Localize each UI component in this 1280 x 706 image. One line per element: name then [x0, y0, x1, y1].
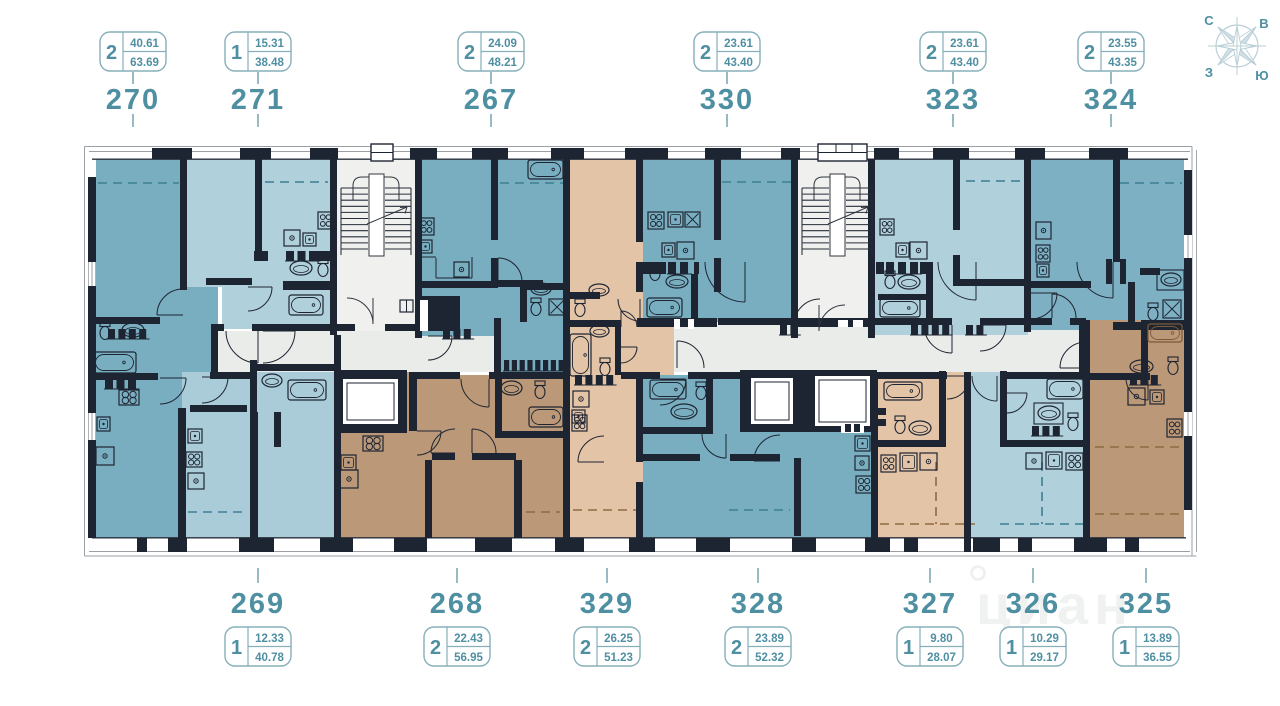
svg-text:1: 1	[903, 637, 914, 659]
svg-text:52.32: 52.32	[755, 652, 784, 664]
svg-text:10.29: 10.29	[1030, 633, 1059, 645]
svg-text:23.55: 23.55	[1108, 38, 1137, 50]
svg-text:327: 327	[903, 588, 957, 620]
svg-text:2: 2	[700, 42, 711, 64]
svg-text:Ю: Ю	[1255, 68, 1268, 83]
svg-text:43.40: 43.40	[724, 57, 753, 69]
svg-text:22.43: 22.43	[454, 633, 483, 645]
svg-text:2: 2	[580, 637, 591, 659]
svg-text:36.55: 36.55	[1143, 652, 1172, 664]
svg-text:23.61: 23.61	[724, 38, 753, 50]
svg-text:323: 323	[926, 84, 980, 116]
svg-text:326: 326	[1006, 588, 1060, 620]
svg-text:56.95: 56.95	[454, 652, 483, 664]
svg-text:269: 269	[231, 588, 285, 620]
svg-text:51.23: 51.23	[604, 652, 633, 664]
svg-text:1: 1	[1006, 637, 1017, 659]
svg-text:23.89: 23.89	[755, 633, 784, 645]
svg-text:328: 328	[731, 588, 785, 620]
svg-text:26.25: 26.25	[604, 633, 633, 645]
svg-text:267: 267	[464, 84, 518, 116]
svg-text:24.09: 24.09	[488, 38, 517, 50]
svg-text:2: 2	[464, 42, 475, 64]
svg-text:1: 1	[231, 42, 242, 64]
svg-text:З: З	[1205, 65, 1213, 80]
svg-text:325: 325	[1119, 588, 1173, 620]
svg-text:23.61: 23.61	[950, 38, 979, 50]
svg-text:9.80: 9.80	[930, 633, 952, 645]
svg-text:40.78: 40.78	[255, 652, 284, 664]
svg-text:270: 270	[106, 84, 160, 116]
svg-text:329: 329	[580, 588, 634, 620]
svg-text:48.21: 48.21	[488, 57, 517, 69]
svg-text:38.48: 38.48	[255, 57, 284, 69]
svg-text:29.17: 29.17	[1030, 652, 1059, 664]
svg-text:2: 2	[1084, 42, 1095, 64]
svg-text:268: 268	[430, 588, 484, 620]
svg-text:43.35: 43.35	[1108, 57, 1137, 69]
svg-text:330: 330	[700, 84, 754, 116]
svg-text:2: 2	[106, 42, 117, 64]
svg-text:С: С	[1204, 13, 1214, 28]
svg-text:13.89: 13.89	[1143, 633, 1172, 645]
svg-text:2: 2	[430, 637, 441, 659]
svg-text:2: 2	[731, 637, 742, 659]
svg-text:40.61: 40.61	[130, 38, 159, 50]
svg-text:15.31: 15.31	[255, 38, 284, 50]
svg-text:63.69: 63.69	[130, 57, 159, 69]
svg-text:1: 1	[231, 637, 242, 659]
svg-text:271: 271	[231, 84, 285, 116]
svg-text:2: 2	[926, 42, 937, 64]
svg-text:12.33: 12.33	[255, 633, 284, 645]
svg-text:1: 1	[1119, 637, 1130, 659]
svg-text:В: В	[1259, 16, 1268, 31]
svg-text:324: 324	[1084, 84, 1138, 116]
svg-text:43.40: 43.40	[950, 57, 979, 69]
svg-text:28.07: 28.07	[927, 652, 956, 664]
